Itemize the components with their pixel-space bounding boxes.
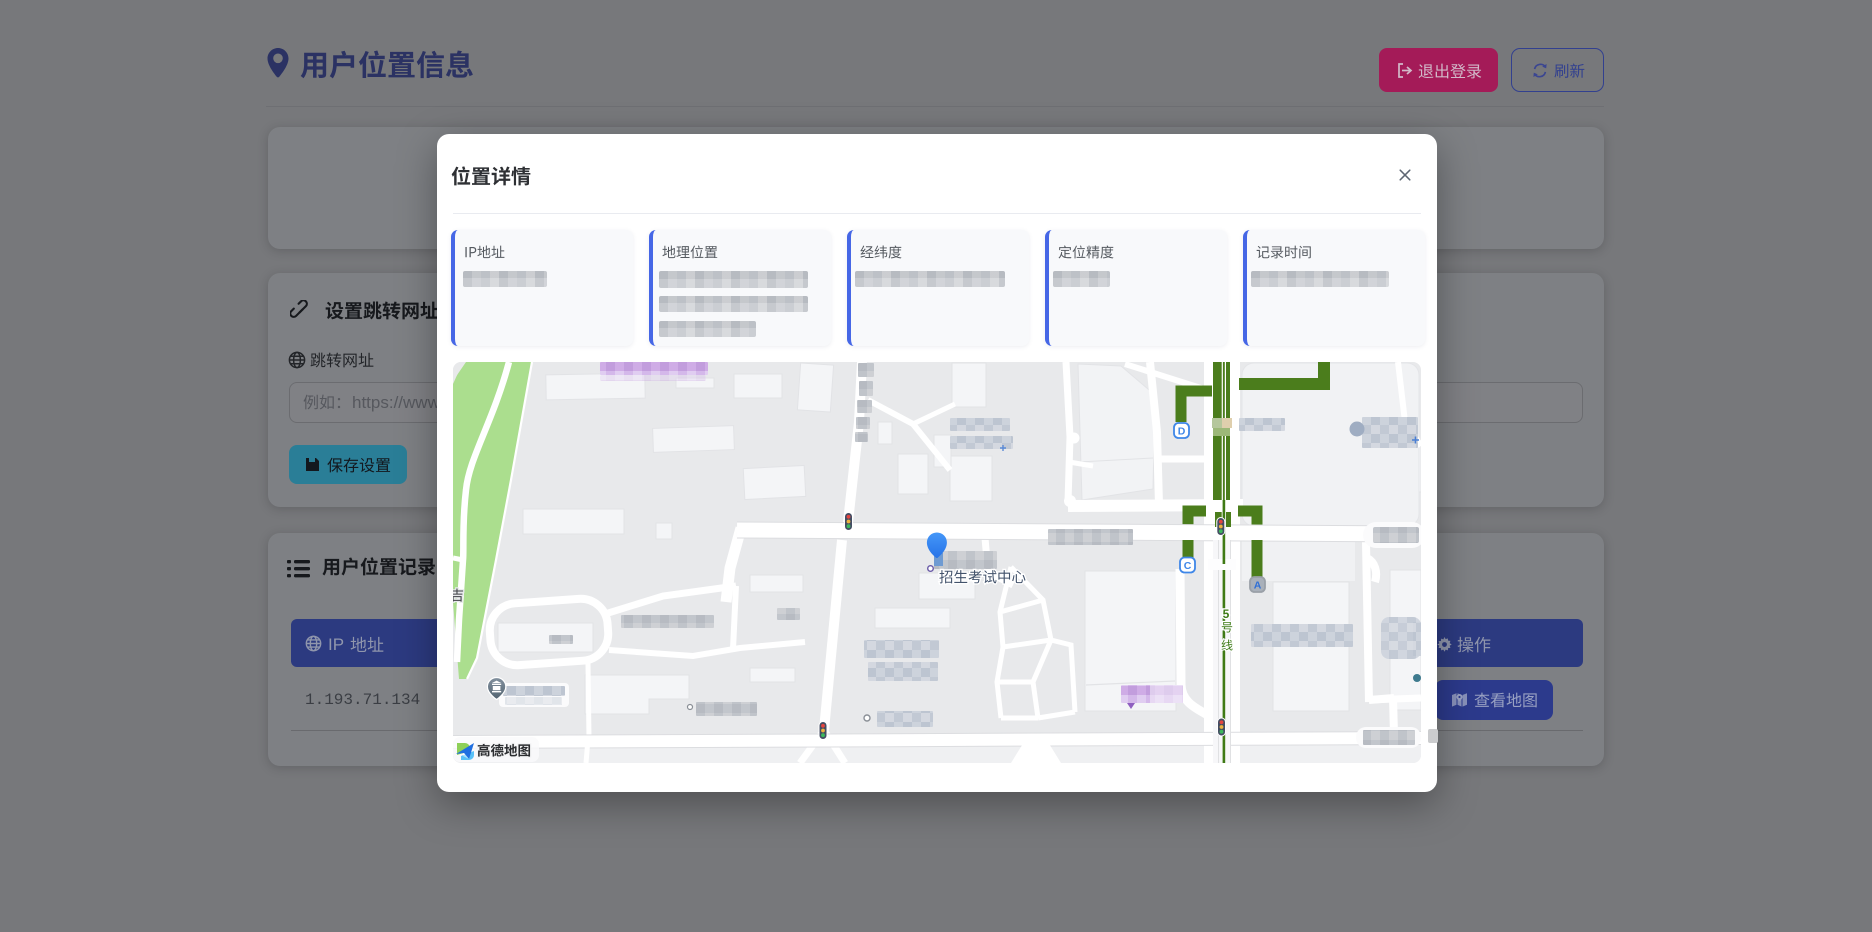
svg-text:A: A [1254, 579, 1262, 591]
svg-text:5: 5 [1223, 607, 1230, 621]
svg-text:C: C [1184, 560, 1192, 572]
svg-text:D: D [1178, 425, 1186, 437]
